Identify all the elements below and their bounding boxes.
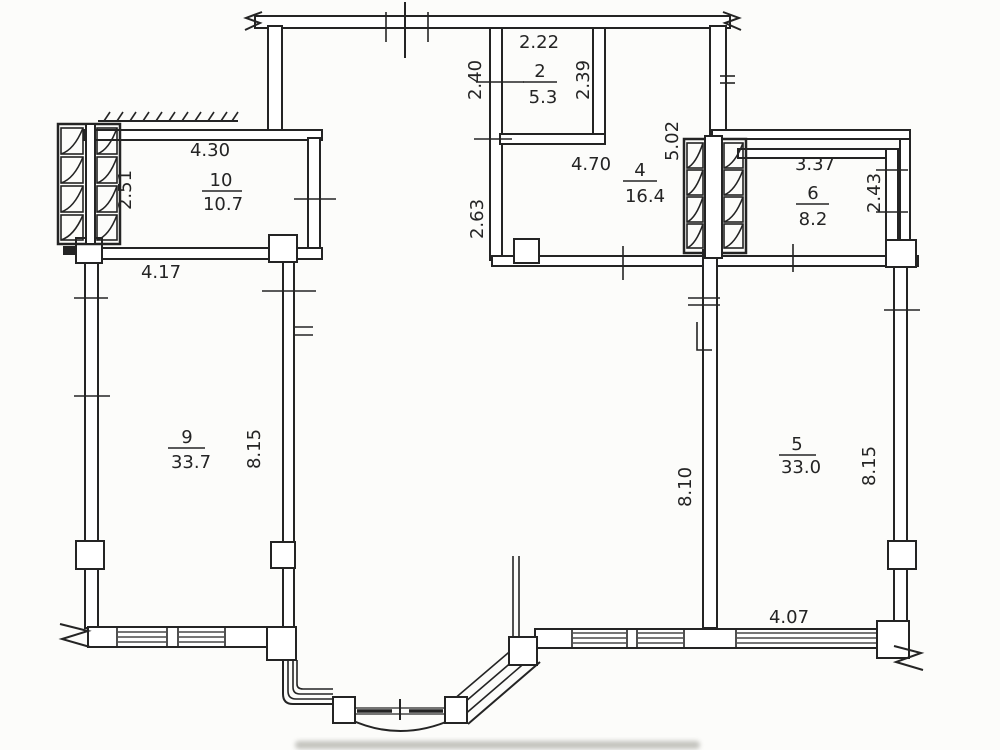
wall-pier [888,541,916,569]
dim-room6-width-top: 3.37 [795,154,835,175]
room-9-number: 9 [181,427,192,448]
room-9-label: 9 33.7 [168,427,211,473]
dim-room5-height-right: 8.15 [859,446,880,486]
bay-arc [349,719,453,731]
wall-pier [445,697,467,723]
wall-pier [269,235,297,262]
room-6-number: 6 [807,183,818,204]
room-5-area: 33.0 [781,457,821,478]
dim-room5-width-bottom: 4.07 [769,607,809,628]
wall-pier [509,637,537,665]
wall-pier [76,541,104,569]
room-6-area: 8.2 [799,209,828,230]
vent-shaft-left [58,124,120,244]
scan-smudge [295,741,700,749]
room-10-number: 10 [210,170,233,191]
floor-plan-sheet: 2 5.3 10 10.7 4 16.4 6 8.2 9 33.7 5 33.0 [0,0,1000,750]
room-4-label: 4 16.4 [623,160,665,207]
dim-room9-height: 8.15 [244,429,265,469]
dim-room2-height-left: 2.40 [465,60,486,100]
room-6-label: 6 8.2 [796,183,829,230]
room-9-area: 33.7 [171,452,211,473]
dim-room4-width-top: 4.70 [571,154,611,175]
room-10-label: 10 10.7 [202,170,243,215]
dim-room5-height-left: 8.10 [675,467,696,507]
dim-room10-width-top: 4.30 [190,140,230,161]
bay-window [267,556,540,731]
room-5-number: 5 [791,434,802,455]
dim-room2-height-right: 2.39 [573,60,594,100]
dim-room10-height-left: 2.51 [115,170,136,210]
room-2-label: 2 5.3 [523,61,557,108]
parapet-hatched-line [98,112,238,121]
exterior-walls [63,16,918,628]
dim-room2-width-top: 2.22 [519,32,559,53]
room-4-number: 4 [634,160,645,181]
dim-room6-height-right: 2.43 [864,173,885,213]
wall-pier [267,627,296,660]
wall-pier [333,697,355,723]
dim-room4-height-left: 2.63 [467,199,488,239]
wall-pier [271,542,295,568]
wall-pier [886,240,916,267]
dim-room4-height-right: 5.02 [662,121,683,161]
wall-pier [514,239,539,263]
room-2-number: 2 [534,61,545,82]
dim-room10-width-bottom: 4.17 [141,262,181,283]
room-5-label: 5 33.0 [779,434,821,478]
room-4-area: 16.4 [625,186,665,207]
room-10-area: 10.7 [203,194,243,215]
vent-shaft-right [684,136,746,258]
floor-plan-drawing: 2 5.3 10 10.7 4 16.4 6 8.2 9 33.7 5 33.0 [0,0,1000,750]
room-2-area: 5.3 [529,87,558,108]
wall-pier [877,621,909,658]
interior-walls [269,235,717,628]
